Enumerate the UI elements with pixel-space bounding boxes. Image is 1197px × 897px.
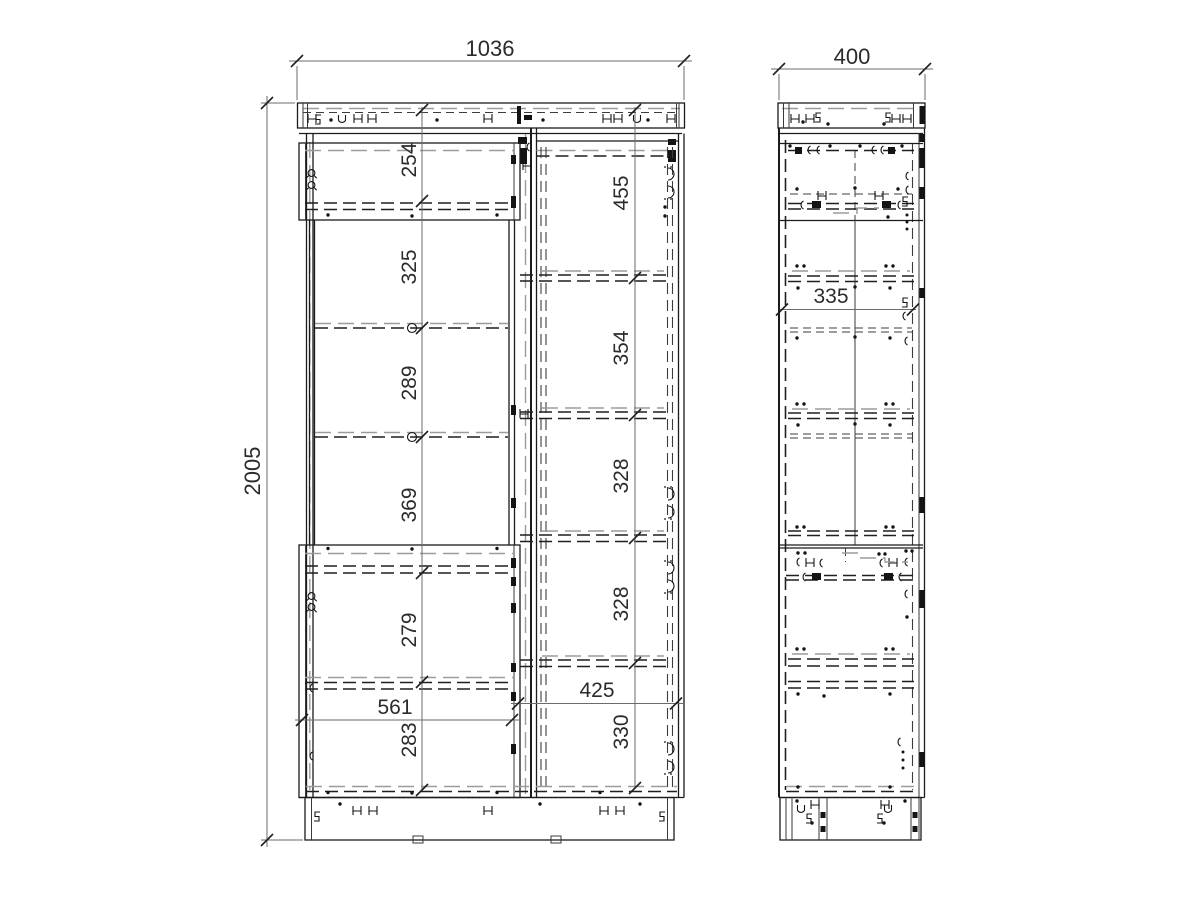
dim-right-chain: 455 354 328 328 330 xyxy=(610,104,641,794)
front-base xyxy=(299,787,684,844)
front-top-panel xyxy=(298,103,685,134)
dim-left-section-3: 369 xyxy=(398,487,421,522)
dim-left-section-1: 325 xyxy=(398,249,421,284)
dim-front-width: 1036 xyxy=(466,36,515,61)
dim-front-height: 2005 xyxy=(240,447,265,496)
dim-front-width-group: 1036 xyxy=(289,36,692,100)
dim-left-section-5: 283 xyxy=(398,722,421,757)
side-body xyxy=(779,128,925,798)
dim-right-section-2: 328 xyxy=(610,458,633,493)
cabinet-technical-drawing: 1036 2005 254 325 289 369 279 283 xyxy=(0,0,1197,897)
side-top-panel xyxy=(778,103,925,134)
dim-right-section-1: 354 xyxy=(610,330,633,365)
dim-left-inner-width: 561 xyxy=(377,696,412,719)
dim-left-section-0: 254 xyxy=(398,142,421,177)
dim-right-section-3: 328 xyxy=(610,586,633,621)
dim-right-inner-width: 425 xyxy=(579,679,614,702)
side-base xyxy=(779,798,925,841)
side-view: 400 335 xyxy=(771,44,933,840)
dim-right-section-0: 455 xyxy=(610,175,633,210)
dim-front-height-group: 2005 xyxy=(240,96,303,847)
dim-side-depth: 400 xyxy=(834,44,871,69)
dim-side-depth-group: 400 xyxy=(771,44,933,100)
technical-drawing-page: 1036 2005 254 325 289 369 279 283 xyxy=(0,0,1197,897)
dim-left-chain: 254 325 289 369 279 283 xyxy=(398,104,428,796)
front-view: 1036 2005 254 325 289 369 279 283 xyxy=(240,36,692,847)
dim-side-inner-depth: 335 xyxy=(813,285,848,308)
dim-left-section-4: 279 xyxy=(398,612,421,647)
dim-side-inner-group: 335 xyxy=(776,285,919,320)
front-lower-drawer xyxy=(299,545,520,798)
dim-right-section-4: 330 xyxy=(610,714,633,749)
dim-left-section-2: 289 xyxy=(398,365,421,400)
